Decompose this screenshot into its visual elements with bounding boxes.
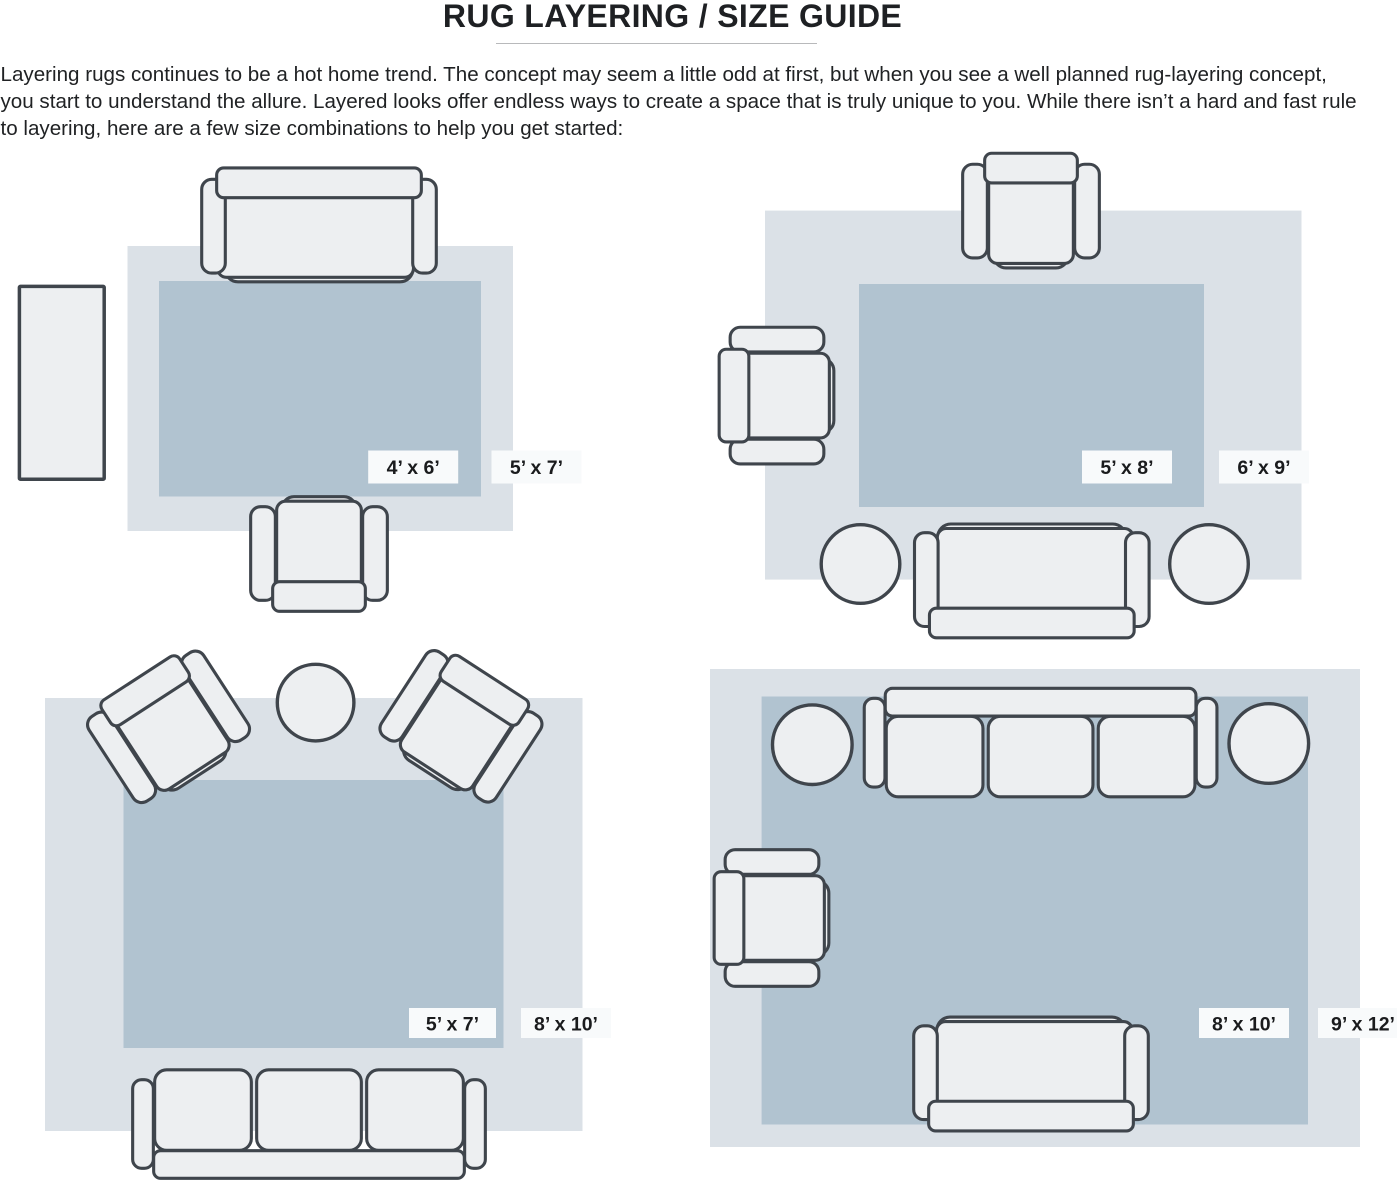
- svg-text:6’ x 9’: 6’ x 9’: [1237, 457, 1290, 479]
- svg-text:5’ x 7’: 5’ x 7’: [426, 1014, 479, 1036]
- svg-text:8’ x 10’: 8’ x 10’: [1212, 1014, 1276, 1036]
- svg-text:4’ x 6’: 4’ x 6’: [387, 457, 440, 479]
- svg-text:5’ x 7’: 5’ x 7’: [510, 457, 563, 479]
- svg-text:8’ x 10’: 8’ x 10’: [534, 1014, 598, 1036]
- svg-text:9’ x 12’: 9’ x 12’: [1331, 1014, 1395, 1036]
- svg-text:5’ x 8’: 5’ x 8’: [1100, 457, 1153, 479]
